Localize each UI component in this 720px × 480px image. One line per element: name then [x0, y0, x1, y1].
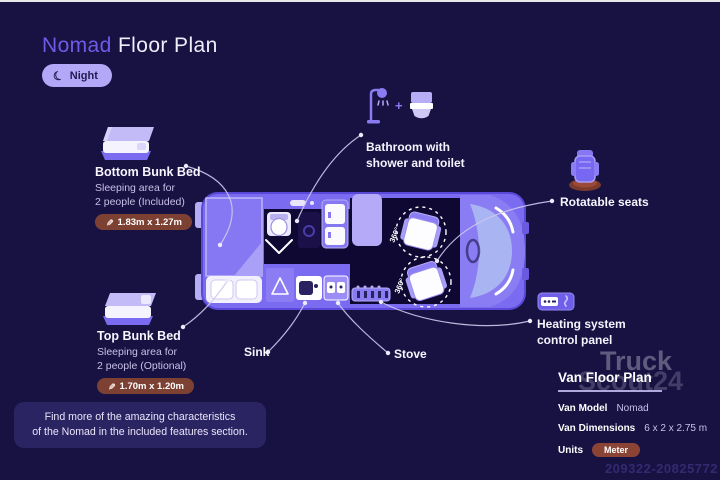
bunk-bed-icon: [97, 284, 161, 326]
sink: [296, 276, 322, 300]
cabinet: [322, 200, 348, 248]
label-line: Heating system: [537, 317, 667, 333]
desc-line: 2 people (Optional): [97, 360, 257, 374]
page-title: Nomad Floor Plan: [42, 34, 218, 58]
spec-value: Nomad: [616, 403, 648, 414]
spec-label: Units: [558, 445, 583, 456]
heater: [352, 286, 390, 302]
dinette: [352, 194, 382, 246]
feature-title: Bathroom with shower and toilet: [366, 140, 506, 172]
spec-label: Van Model: [558, 403, 607, 414]
mirror-top: [522, 222, 529, 234]
feature-title: Rotatable seats: [560, 195, 690, 209]
feature-bottom-bunk: Bottom Bunk Bed Sleeping area for 2 peop…: [95, 116, 255, 230]
feature-bathroom: + Bathroom with shower and toilet: [366, 86, 506, 172]
spec-row: Van Dimensions 6 x 2 x 2.75 m: [558, 423, 716, 434]
label-line: Bathroom with: [366, 140, 506, 156]
dimension-badge: ✎ 1.83m x 1.27m: [95, 214, 192, 230]
feature-heating: Heating system control panel: [537, 292, 667, 349]
unit-badge[interactable]: Meter: [592, 443, 640, 457]
spec-panel: Van Floor Plan Van Model Nomad Van Dimen…: [558, 370, 716, 466]
dimension-badge: ✎ 1.70m x 1.20m: [97, 378, 194, 394]
spec-row: Van Model Nomad: [558, 403, 716, 414]
top-edge-line: [0, 0, 720, 2]
pencil-icon: ✎: [103, 219, 114, 227]
feature-description: Sleeping area for 2 people (Optional): [97, 346, 257, 373]
stove: [324, 276, 348, 300]
feature-title: Bottom Bunk Bed: [95, 165, 255, 179]
spec-panel-underline: [558, 390, 662, 392]
van-floor-plan-page: Nomad Floor Plan ☾ Night: [0, 0, 720, 480]
desc-line: Sleeping area for: [95, 182, 255, 196]
page-title-accent: Nomad: [42, 34, 112, 57]
page-title-rest: Floor Plan: [118, 34, 218, 57]
heating-panel-icon: [537, 292, 575, 311]
feature-title: Top Bunk Bed: [97, 329, 257, 343]
dimension-value: 1.70m x 1.20m: [120, 381, 184, 392]
seat-icon: [566, 148, 606, 192]
toilet: [267, 212, 291, 236]
kitchen-area: [264, 264, 350, 304]
feature-title: Heating system control panel: [537, 317, 667, 349]
toilet-icon: [408, 90, 435, 121]
plus-icon: +: [395, 98, 403, 113]
note-line: of the Nomad in the included features se…: [32, 425, 248, 440]
mirror-bottom: [522, 268, 529, 280]
desc-line: Sleeping area for: [97, 346, 257, 360]
note-line: Find more of the amazing characteristics: [45, 410, 236, 425]
feature-rotatable-seats: Rotatable seats: [560, 148, 690, 209]
sink-label: Sink: [244, 345, 269, 359]
shower-icon: [366, 86, 390, 124]
stove-label: Stove: [394, 347, 427, 361]
spec-row: Units Meter: [558, 443, 716, 457]
crescent-moon-icon: ☾: [51, 68, 65, 83]
feature-top-bunk: Top Bunk Bed Sleeping area for 2 people …: [97, 284, 257, 394]
info-note-box: Find more of the amazing characteristics…: [14, 402, 266, 448]
dimension-value: 1.83m x 1.27m: [118, 217, 182, 228]
shower-tray: [298, 212, 320, 248]
bathroom-icons: +: [366, 86, 506, 124]
feature-description: Sleeping area for 2 people (Included): [95, 182, 255, 209]
night-mode-label: Night: [70, 70, 98, 82]
desc-line: 2 people (Included): [95, 196, 255, 210]
label-line: control panel: [537, 333, 667, 349]
spec-label: Van Dimensions: [558, 423, 635, 434]
label-line: shower and toilet: [366, 156, 506, 172]
spec-value: 6 x 2 x 2.75 m: [644, 423, 707, 434]
pencil-icon: ✎: [105, 383, 116, 391]
night-mode-toggle[interactable]: ☾ Night: [42, 64, 112, 87]
bunk-bed-icon: [95, 116, 159, 162]
spec-panel-title: Van Floor Plan: [558, 370, 716, 385]
